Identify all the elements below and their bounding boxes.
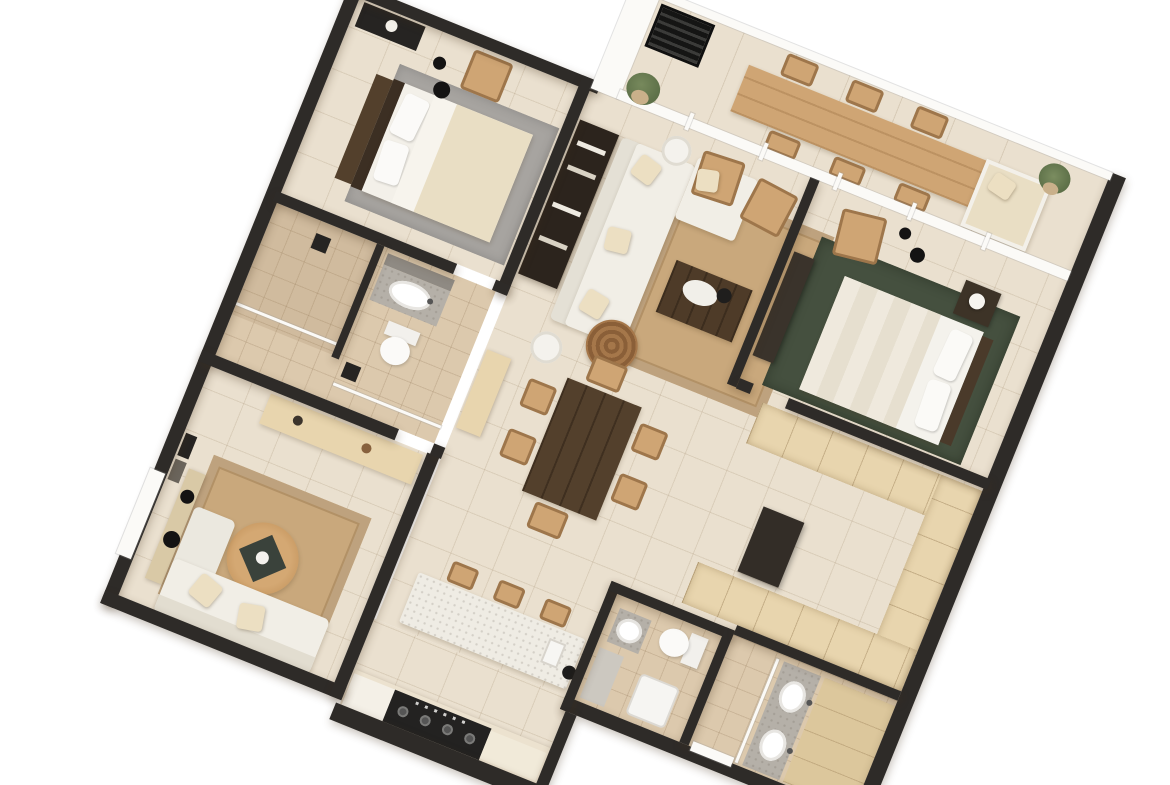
burner	[418, 714, 432, 728]
book-row	[576, 140, 606, 156]
decor-object	[360, 442, 373, 455]
burner	[440, 723, 454, 737]
floor-plan-canvas	[0, 0, 1170, 785]
burner	[396, 705, 410, 719]
decor-object	[291, 414, 304, 427]
burner	[463, 732, 477, 746]
throw-pillow	[695, 168, 720, 193]
book-row	[538, 235, 568, 251]
book-row	[567, 164, 597, 180]
sofa-cushion	[236, 602, 266, 632]
apartment-floor-plan	[0, 0, 1170, 785]
book-row	[552, 201, 582, 217]
